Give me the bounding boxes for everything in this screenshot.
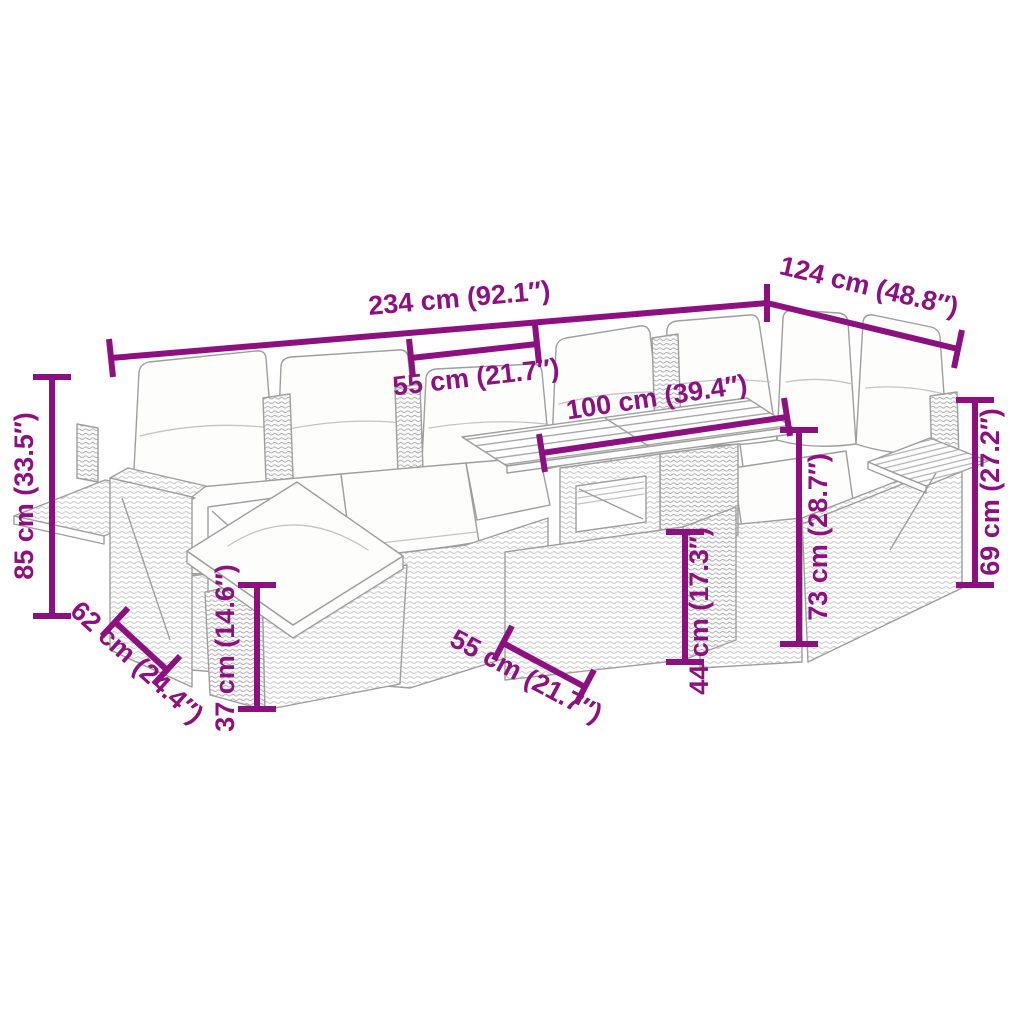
back-cushion [133,351,276,492]
dimension-label-armrest-side-height: 73 cm (28.7″) [803,453,833,621]
dimension-label-backrest-height: 85 cm (33.5″) [9,412,39,580]
dimension-label-table-height: 44 cm (17.3″) [684,527,714,695]
frame-post [77,424,98,482]
dimension-diagram-canvas: 234 cm (92.1″) 55 cm (21.7″) 124 cm (48.… [0,0,1024,1024]
dimension-label-total-width: 234 cm (92.1″) [367,275,551,321]
dimension-label-footstool-height: 37 cm (14.6″) [210,564,240,732]
dimension-label-right-backrest-height: 69 cm (27.2″) [975,408,1005,576]
dimension-right-backrest-height: 69 cm (27.2″) [956,400,1005,585]
dimension-diagram: 234 cm (92.1″) 55 cm (21.7″) 124 cm (48.… [0,0,1024,1024]
frame-post [263,394,293,482]
